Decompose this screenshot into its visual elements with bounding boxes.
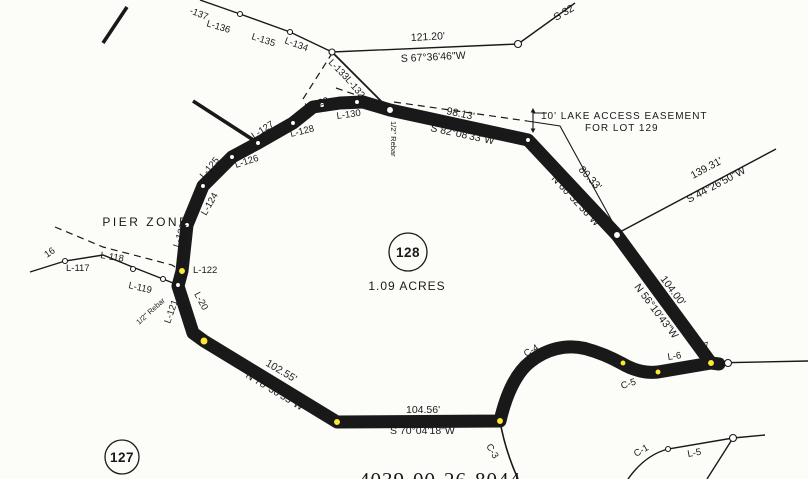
survey-point bbox=[666, 447, 671, 452]
survey-point bbox=[288, 30, 293, 35]
segment-label-l119: L-119 bbox=[127, 280, 152, 296]
segment-label-c3: C-3 bbox=[483, 442, 500, 461]
survey-point bbox=[387, 107, 394, 114]
rebar-note-top: 1/2" Rebar bbox=[389, 121, 398, 157]
survey-point bbox=[730, 435, 737, 442]
parcel-number: 4039-00-26-8044 bbox=[359, 468, 521, 479]
survey-point bbox=[179, 268, 186, 275]
survey-point bbox=[238, 12, 243, 17]
segment-label-c1: C-1 bbox=[632, 442, 651, 459]
segment-label-c5: C-5 bbox=[620, 377, 638, 392]
lot-identity: 128 1.09 ACRES 127 4039-00-26-8044 bbox=[110, 245, 521, 479]
bearing-label-7004: S 70°04'18"W bbox=[390, 425, 455, 437]
plat-map: -137 L-136 L-135 L-134 L-133 L-132 L-130… bbox=[0, 0, 808, 479]
survey-point bbox=[526, 138, 531, 143]
distance-label-10456: 104.56' bbox=[406, 404, 440, 416]
segment-label-l134: L-134 bbox=[283, 35, 310, 54]
segment-label-l136: L-136 bbox=[205, 18, 231, 36]
segment-label-l5: L-5 bbox=[687, 447, 702, 460]
lot-128-number: 128 bbox=[396, 245, 420, 260]
survey-point bbox=[131, 267, 136, 272]
segment-label-l137: -137 bbox=[188, 6, 210, 23]
survey-point bbox=[334, 419, 341, 426]
segment-label-l130: L-130 bbox=[336, 108, 362, 122]
easement-note-line1: 10' LAKE ACCESS EASEMENT bbox=[541, 111, 708, 122]
easement-note-line2: FOR LOT 129 bbox=[585, 123, 659, 134]
segment-label-l117: L-117 bbox=[66, 263, 90, 274]
survey-point bbox=[291, 121, 296, 126]
segment-label-l116: 16 bbox=[42, 245, 57, 260]
pier-zone-label: PIER ZONE bbox=[102, 215, 189, 229]
survey-point bbox=[230, 155, 235, 160]
dashed-lines bbox=[55, 55, 527, 271]
distance-label-12120: 121.20' bbox=[411, 30, 446, 44]
survey-point bbox=[329, 49, 335, 55]
plat-map-canvas: -137 L-136 L-135 L-134 L-133 L-132 L-130… bbox=[0, 0, 808, 479]
survey-point bbox=[614, 232, 621, 239]
survey-point bbox=[515, 41, 522, 48]
segment-label-l120: L-20 bbox=[191, 290, 210, 312]
segment-label-l122: L-122 bbox=[193, 265, 217, 276]
bearing-label-12120: S 67°36'46"W bbox=[401, 50, 466, 65]
survey-point bbox=[201, 184, 206, 189]
lot-128-area: 1.09 ACRES bbox=[368, 279, 445, 293]
lot-127-number: 127 bbox=[110, 450, 134, 465]
survey-point bbox=[200, 337, 208, 345]
survey-point bbox=[620, 360, 626, 366]
thick-lines bbox=[103, 7, 258, 143]
segment-label-l6: L-6 bbox=[667, 350, 682, 363]
survey-point bbox=[708, 360, 715, 367]
segment-label-l135: L-135 bbox=[250, 31, 277, 49]
survey-point bbox=[161, 277, 166, 282]
survey-point bbox=[655, 369, 661, 375]
survey-point bbox=[497, 418, 504, 425]
survey-point bbox=[725, 360, 732, 367]
segment-label-l118: L-118 bbox=[100, 250, 125, 265]
survey-point bbox=[176, 283, 181, 288]
survey-point bbox=[256, 141, 261, 146]
survey-point bbox=[355, 100, 360, 105]
